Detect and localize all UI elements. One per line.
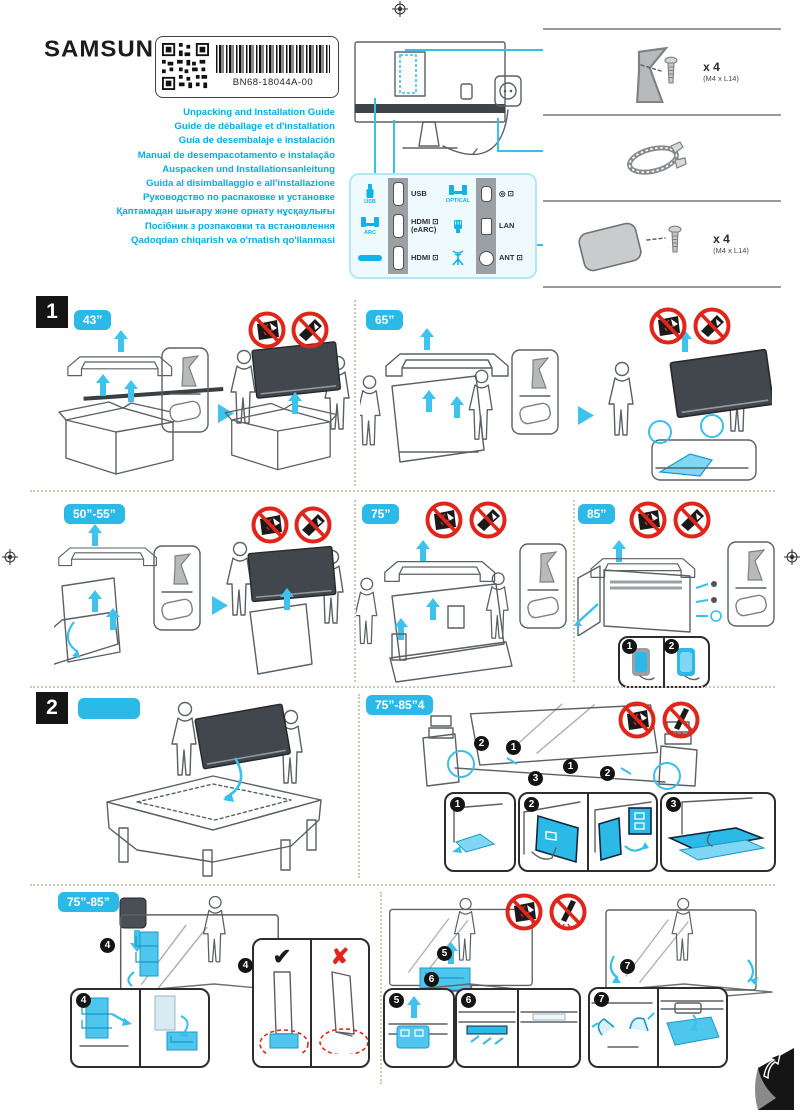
step-marker: 2 — [474, 736, 489, 751]
step-marker: 1 — [622, 639, 637, 654]
section-2-number: 2 — [36, 692, 68, 724]
optical-speakers-icon: OPTICAL — [443, 184, 473, 204]
title-pt: Manual de desempacotamento e instalação — [95, 149, 335, 163]
wall-outlet-icon — [495, 76, 521, 106]
size-badge-50-55: 50”-55” — [64, 504, 125, 524]
registration-mark-icon — [784, 549, 800, 565]
no-pressing-screen-icon — [628, 500, 668, 540]
title-ru: Руководство по распаковке и установке — [95, 191, 335, 205]
step-marker: 7 — [594, 992, 609, 1007]
title-uz: Qadoqdan chiqarish va o'rnatish qo'llanm… — [95, 234, 335, 248]
step-7-inset — [588, 987, 728, 1068]
antenna-icon — [443, 250, 473, 266]
person-icon — [360, 376, 380, 445]
remove-wrap-illustration — [588, 898, 783, 998]
check-icon: ✔ — [254, 944, 310, 970]
step-marker: 1 — [450, 797, 465, 812]
ethernet-plug-icon — [443, 218, 473, 234]
unpacking-85-illustration — [574, 540, 776, 636]
qr-code — [162, 43, 209, 90]
incorrect-example: ✘ — [310, 940, 368, 1066]
accessories-inset — [512, 350, 558, 434]
no-carrying-by-panel-icon — [468, 500, 508, 540]
port-cell-usb: USB USB — [355, 178, 443, 210]
tv-box-icon — [250, 604, 312, 674]
box-lid-icon — [386, 354, 508, 376]
accessories-inset — [728, 542, 774, 626]
registration-mark-icon — [392, 1, 408, 17]
accessories-inset — [520, 544, 566, 628]
port-cell-optical: OPTICAL ◎ ⊡ — [443, 178, 531, 210]
next-step-arrow-icon — [212, 596, 228, 615]
tv-box-icon — [392, 376, 484, 462]
lan-port — [476, 210, 496, 242]
hdmi-port-label: HDMI ⊡ — [411, 254, 439, 263]
table-cloth — [107, 800, 321, 862]
tv-box-icon — [604, 570, 690, 632]
next-step-arrow-icon — [578, 406, 594, 425]
box-lid-icon — [68, 357, 172, 376]
page-turn-icon — [742, 1038, 800, 1114]
foam-column-icon — [140, 932, 158, 976]
part-number: BN68-18044A-00 — [216, 77, 330, 88]
no-carrying-by-panel-icon — [692, 306, 732, 346]
usb-port — [388, 178, 408, 210]
optical-port — [476, 178, 496, 210]
registration-mark-icon — [2, 549, 18, 565]
person-icon — [231, 351, 255, 424]
step-marker: 5 — [437, 946, 452, 961]
person-icon — [204, 896, 226, 961]
no-leaning-panel-icon — [548, 892, 588, 932]
callout-line — [374, 98, 376, 174]
cover-part-icon — [120, 898, 146, 928]
cross-icon: ✘ — [312, 944, 368, 970]
optical-device-label: OPTICAL — [446, 198, 470, 204]
hand-icon — [660, 454, 712, 476]
person-icon — [172, 703, 196, 776]
step-marker: 5 — [389, 993, 404, 1008]
tv-icon — [252, 342, 341, 399]
product-label: BN68-18044A-00 — [155, 36, 339, 98]
callout-line — [497, 150, 543, 152]
step-marker: 4 — [100, 938, 115, 953]
screw-icon — [665, 57, 677, 83]
up-arrow-icon — [88, 524, 102, 546]
port-cell-hdmi: HDMI ⊡ — [355, 242, 443, 274]
soundbar-icon — [355, 254, 385, 262]
no-pressing-screen-icon — [250, 505, 290, 545]
usb-device-label: USB — [364, 199, 376, 205]
size-badge-75: 75” — [362, 504, 399, 524]
panel-divider — [380, 892, 382, 1084]
no-pressing-screen-icon — [617, 700, 657, 740]
ports-panel: USB USB OPTICAL ◎ ⊡ ARC HDMI ⊡ (eARC) LA… — [349, 173, 537, 279]
unpacking-50-55-illustration — [54, 524, 352, 686]
step-marker: 7 — [620, 959, 635, 974]
digital-audio-out-icon: ◎ ⊡ — [499, 190, 514, 199]
no-carrying-by-panel-icon — [293, 505, 333, 545]
barcode — [216, 45, 330, 73]
section-divider — [30, 686, 775, 688]
hdmi-earc-line2: (eARC) — [411, 226, 439, 235]
usb-stick-icon: USB — [355, 183, 385, 205]
size-badge-43: 43” — [74, 310, 111, 330]
unpacking-75-illustration — [356, 540, 570, 686]
arc-device-label: ARC — [364, 230, 376, 236]
stand-neck-spec: (M4 x L14) — [703, 74, 739, 83]
port-cell-lan: LAN — [443, 210, 531, 242]
place-tv-on-table-illustration — [85, 700, 343, 880]
part-stand-neck: x 4 (M4 x L14) — [543, 28, 781, 114]
stand-neck-qty: x 4 — [703, 61, 739, 74]
up-arrow-icon — [114, 330, 128, 352]
panel-divider — [354, 300, 356, 486]
hdmi-earc-label: HDMI ⊡ (eARC) — [411, 218, 439, 235]
stand-base-icon — [575, 212, 705, 276]
step-marker: 2 — [524, 797, 539, 812]
part-cable-tie — [543, 114, 781, 200]
correct-incorrect-panel: ✔ ✘ — [252, 938, 370, 1068]
size-badge-65: 65” — [366, 310, 403, 330]
box-lid-icon — [59, 548, 157, 566]
part-stand-base: x 4 (M4 x L14) — [543, 200, 781, 288]
stand-base-spec: (M4 x L14) — [713, 246, 749, 255]
multilingual-titles: Unpacking and Installation Guide Guide d… — [95, 106, 335, 248]
step-4-inset — [70, 988, 210, 1068]
step-marker: 1 — [506, 740, 521, 755]
tv-icon — [195, 704, 291, 769]
callout-line — [497, 118, 499, 152]
callout-line — [405, 49, 543, 51]
title-es: Guía de desembalaje e instalación — [95, 134, 335, 148]
title-fr: Guide de déballage et d'installation — [95, 120, 335, 134]
title-en: Unpacking and Installation Guide — [95, 106, 335, 120]
screw-icon — [669, 226, 681, 252]
correct-example: ✔ — [254, 940, 310, 1066]
title-de: Auspacken und Installationsanleitung — [95, 163, 335, 177]
title-it: Guida al disimballaggio e all'installazi… — [95, 177, 335, 191]
ant-port-label: ANT ⊡ — [499, 254, 523, 263]
step-marker: 3 — [528, 771, 543, 786]
ant-port — [476, 242, 496, 274]
tv-icon — [670, 349, 772, 417]
step-marker: 2 — [600, 766, 615, 781]
no-pressing-screen-icon — [247, 310, 287, 350]
step-marker: 3 — [666, 797, 681, 812]
person-icon — [609, 363, 633, 436]
step-marker: 6 — [461, 993, 476, 1008]
no-carrying-by-panel-icon — [672, 500, 712, 540]
stand-neck-icon — [585, 41, 695, 103]
step-marker: 6 — [424, 972, 439, 987]
person-icon — [227, 543, 251, 616]
person-icon — [356, 578, 377, 643]
size-badge-85: 85” — [578, 504, 615, 524]
box-base-icon — [390, 642, 512, 682]
port-cell-hdmi-earc: ARC HDMI ⊡ (eARC) — [355, 210, 443, 242]
panel-divider — [358, 694, 360, 878]
up-arrow-icon — [416, 540, 430, 562]
arc-speakers-icon: ARC — [355, 216, 385, 236]
tv-icon — [248, 546, 336, 601]
cable-tie-icon — [617, 134, 707, 182]
row-divider — [30, 490, 775, 492]
no-leaning-panel-icon — [661, 700, 701, 740]
row-divider — [30, 884, 775, 886]
accessories-inset — [154, 546, 200, 630]
usb-port-label: USB — [411, 190, 427, 199]
person-icon — [487, 573, 509, 638]
hdmi-earc-port — [388, 210, 408, 242]
stand-base-qty: x 4 — [713, 233, 749, 246]
hdmi-port — [388, 242, 408, 274]
port-cell-ant: ANT ⊡ — [443, 242, 531, 274]
no-carrying-by-panel-icon — [290, 310, 330, 350]
up-arrow-icon — [420, 328, 434, 350]
lan-port-label: LAN — [499, 222, 514, 231]
no-pressing-screen-icon — [424, 500, 464, 540]
manual-page: SAMSUNG BN68-18044A-00 Unpacking and Ins… — [0, 0, 802, 1116]
no-pressing-screen-icon — [648, 306, 688, 346]
no-pressing-screen-icon — [504, 892, 544, 932]
box-lid-icon — [385, 562, 495, 582]
title-uk: Посібник з розпаковки та встановлення — [95, 220, 335, 234]
title-kk: Қаптамадан шығару және орнату нұсқаулығы — [95, 205, 335, 219]
unpacking-43-illustration — [56, 328, 352, 484]
parts-list: x 4 (M4 x L14) x 4 (M4 x L14) — [543, 28, 781, 288]
step-2-inset — [518, 792, 658, 872]
step-marker: 4 — [76, 993, 91, 1008]
step-marker: 1 — [563, 759, 578, 774]
unpacking-65-illustration — [360, 328, 772, 486]
step-marker: 2 — [664, 639, 679, 654]
person-icon — [469, 370, 492, 439]
step-marker: 4 — [238, 958, 253, 973]
section-1-number: 1 — [36, 296, 68, 328]
